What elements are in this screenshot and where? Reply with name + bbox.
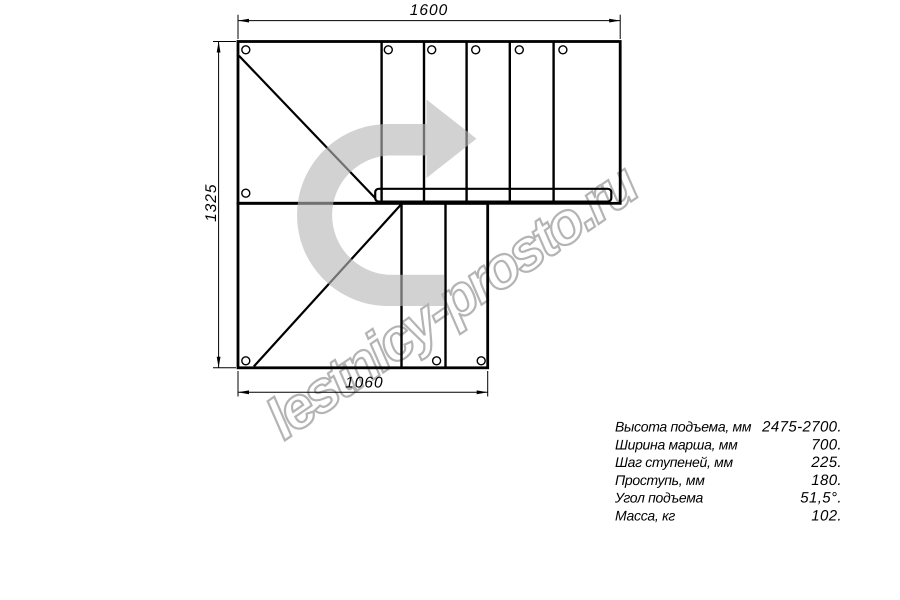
svg-text:1060: 1060 <box>345 375 383 392</box>
svg-text:Высота подъема, мм: Высота подъема, мм <box>615 419 752 435</box>
svg-text:51,5°.: 51,5°. <box>800 490 842 507</box>
svg-text:Ширина марша, мм: Ширина марша, мм <box>615 436 738 452</box>
svg-text:225.: 225. <box>810 454 842 471</box>
svg-text:Масса, кг: Масса, кг <box>615 507 675 523</box>
svg-text:700.: 700. <box>811 436 842 453</box>
svg-text:Угол подъема: Угол подъема <box>614 490 704 506</box>
svg-text:Проступь, мм: Проступь, мм <box>615 472 705 488</box>
svg-text:Шаг ступеней, мм: Шаг ступеней, мм <box>615 454 733 470</box>
svg-text:102.: 102. <box>811 507 842 524</box>
svg-text:2475-2700.: 2475-2700. <box>761 419 842 436</box>
svg-text:1325: 1325 <box>203 183 220 221</box>
svg-text:1600: 1600 <box>410 2 448 19</box>
svg-text:180.: 180. <box>811 472 842 489</box>
